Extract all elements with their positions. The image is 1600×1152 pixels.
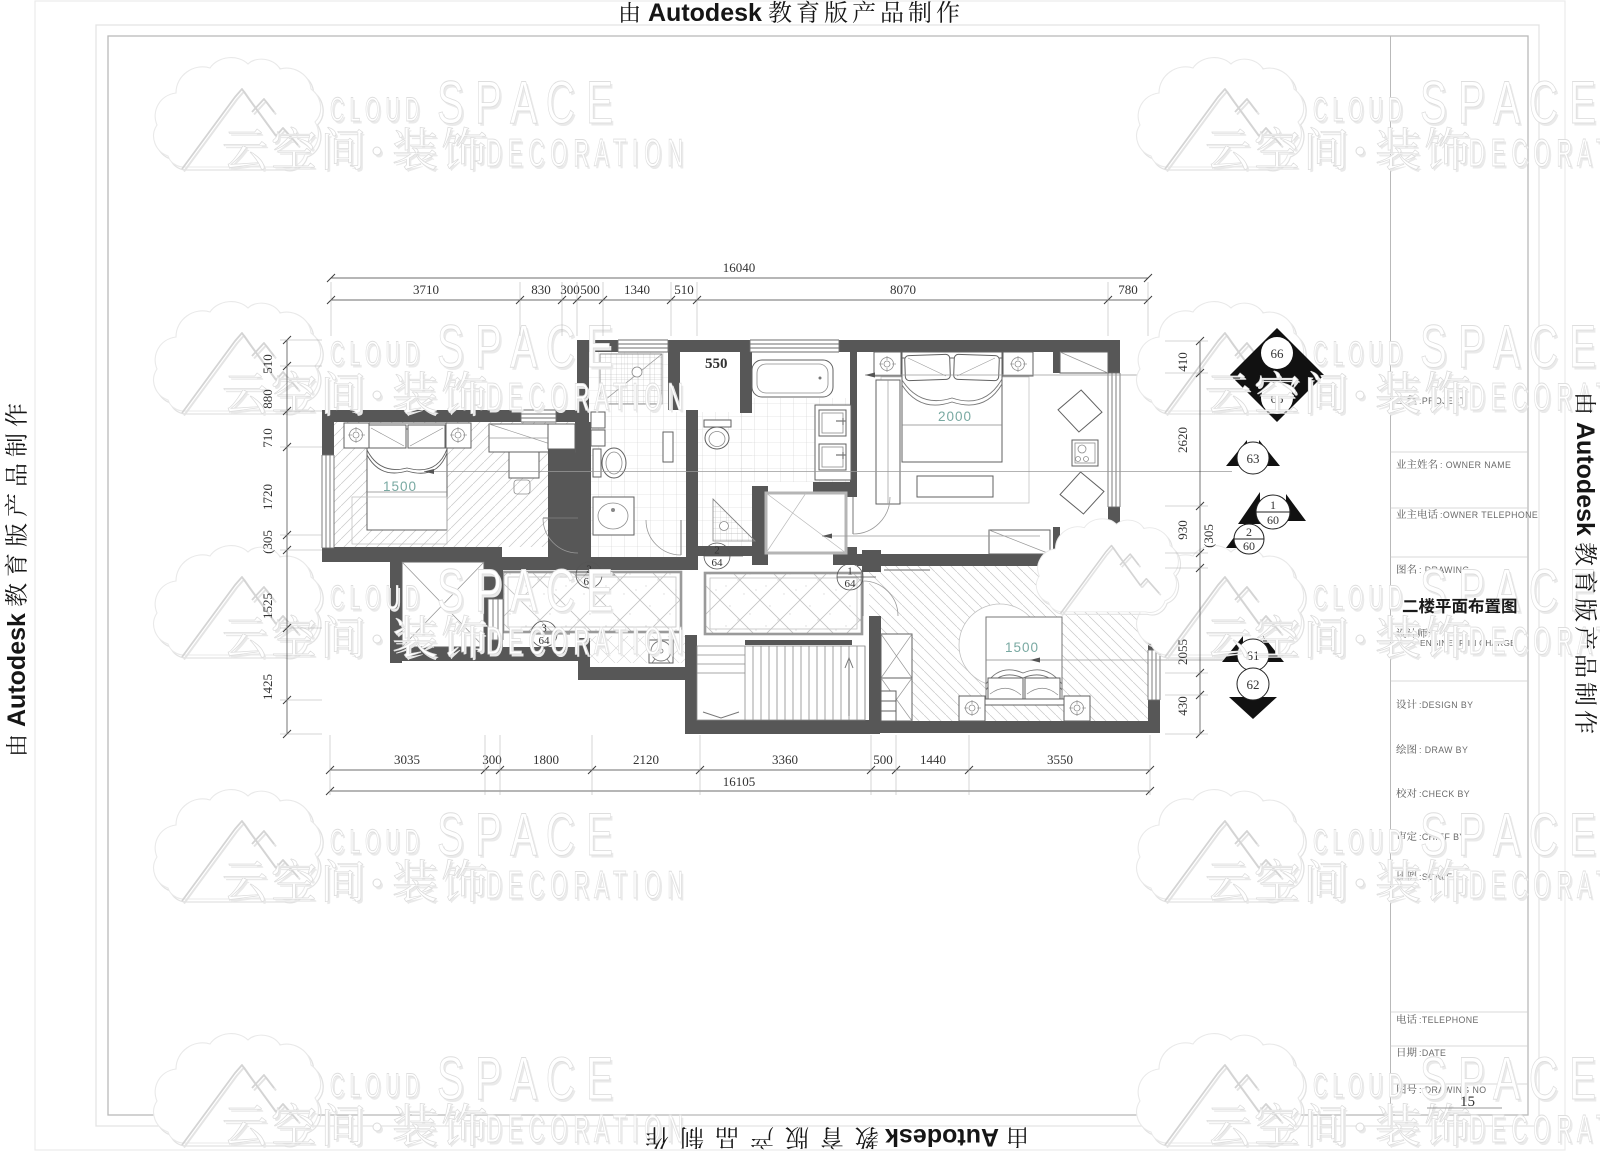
svg-text:2: 2 — [714, 545, 720, 557]
svg-text:Autodesk: Autodesk — [648, 0, 762, 27]
svg-text:830: 830 — [531, 282, 551, 297]
svg-text:63: 63 — [1247, 451, 1260, 466]
svg-text:550: 550 — [705, 356, 728, 372]
svg-text:1: 1 — [847, 566, 853, 578]
svg-text:2: 2 — [1246, 525, 1252, 539]
svg-text:1525: 1525 — [260, 593, 275, 619]
svg-text:1340: 1340 — [624, 282, 650, 297]
svg-text:1425: 1425 — [260, 674, 275, 700]
svg-text:410: 410 — [1175, 352, 1190, 372]
svg-text:Autodesk: Autodesk — [3, 613, 31, 727]
svg-text:1: 1 — [1270, 498, 1276, 512]
svg-text:16040: 16040 — [723, 260, 756, 275]
svg-text::DESIGN BY: :DESIGN BY — [1419, 700, 1473, 710]
svg-text:510: 510 — [260, 354, 275, 374]
svg-text:710: 710 — [260, 428, 275, 448]
svg-text:430: 430 — [1175, 696, 1190, 716]
svg-text:3360: 3360 — [772, 752, 798, 767]
svg-text:64: 64 — [845, 578, 857, 590]
svg-text:66: 66 — [1271, 346, 1285, 361]
svg-text::TELEPHONE: :TELEPHONE — [1419, 1015, 1479, 1025]
svg-text:(305: (305 — [260, 530, 275, 554]
svg-text:Autodesk: Autodesk — [1571, 422, 1599, 536]
svg-text:2620: 2620 — [1175, 427, 1190, 453]
svg-text:500: 500 — [873, 752, 893, 767]
svg-text:: OWNER NAME: : OWNER NAME — [1440, 460, 1511, 470]
svg-text::CHECK BY: :CHECK BY — [1419, 789, 1470, 799]
svg-text:780: 780 — [1118, 282, 1138, 297]
svg-text::OWNER TELEPHONE: :OWNER TELEPHONE — [1440, 510, 1538, 520]
svg-text:510: 510 — [674, 282, 694, 297]
svg-text:64: 64 — [712, 557, 724, 569]
svg-text:Autodesk: Autodesk — [885, 1123, 999, 1151]
svg-text:16105: 16105 — [723, 774, 756, 789]
svg-text:2055: 2055 — [1175, 639, 1190, 665]
svg-text:3550: 3550 — [1047, 752, 1073, 767]
svg-text:3710: 3710 — [413, 282, 439, 297]
svg-text:62: 62 — [1247, 677, 1260, 692]
svg-text:3035: 3035 — [394, 752, 420, 767]
svg-text:1440: 1440 — [920, 752, 946, 767]
svg-text:1500: 1500 — [1005, 640, 1039, 655]
svg-text:1720: 1720 — [260, 484, 275, 510]
svg-text:2120: 2120 — [633, 752, 659, 767]
svg-text:60: 60 — [1243, 539, 1255, 553]
svg-text:500: 500 — [580, 282, 600, 297]
svg-text:1800: 1800 — [533, 752, 559, 767]
svg-text:1500: 1500 — [383, 479, 417, 494]
svg-text:2000: 2000 — [938, 409, 972, 424]
svg-text:: DRAW BY: : DRAW BY — [1419, 745, 1468, 755]
svg-text:880: 880 — [260, 389, 275, 409]
svg-text:60: 60 — [1267, 513, 1279, 527]
svg-text:930: 930 — [1175, 520, 1190, 540]
svg-text:8070: 8070 — [890, 282, 916, 297]
svg-text:(305: (305 — [1201, 524, 1216, 548]
